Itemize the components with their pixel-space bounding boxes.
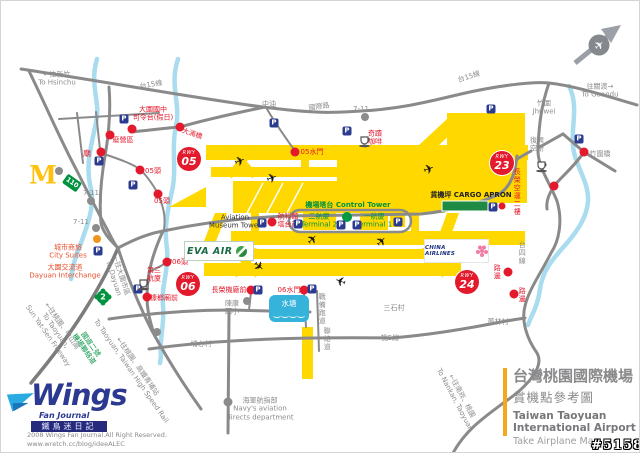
pond-label: 水塘 [269, 298, 309, 309]
dayuan-interchange-label: 大園交流道 Dayuan Interchange [29, 264, 100, 281]
danan-bridge-label: 大湳橋 [181, 127, 204, 141]
link-road-label: 聯絡道 [323, 327, 331, 351]
rwy05-head-2-dot [154, 190, 163, 199]
abandoned-camp-label: 廢營區 [113, 136, 134, 144]
parking-icon: P [489, 203, 498, 212]
parking-icon: P [129, 181, 138, 190]
route-tai15-ne-label: 台15線 [457, 69, 481, 84]
map-title-cn: 台灣桃園國際機場 [513, 368, 636, 385]
parking-icon: P [337, 221, 346, 230]
dayuan-junior-high-label: 大園國中 司令台(假日) [133, 106, 173, 123]
rwy06-head-dot [163, 258, 172, 267]
danan-bridge-dot [176, 123, 185, 132]
seven-eleven-sw-label: 7-11 [73, 218, 89, 226]
kanglang-temple-dot [143, 293, 152, 302]
airplane-icon: ✈ [304, 231, 322, 249]
cargo-apron-label: 貨機坪 CARGO APRON [430, 191, 511, 199]
eva-air-logo: EVA AIR [184, 241, 254, 261]
parking-icon: P [394, 218, 403, 227]
water-waves-icon [273, 311, 305, 320]
rwy05-sluice-dot [291, 148, 300, 157]
navy-dot [224, 398, 233, 407]
parking-icon: P [270, 119, 279, 128]
parking-icon: P [94, 247, 103, 256]
chenkang-elementary-label: 陳康 國小 [225, 300, 239, 317]
roadside-2-label: 路邊 [518, 287, 526, 303]
china-airlines-logo-text: CHINA AIRLINES [425, 245, 477, 257]
control-tower-label: 機場塔台 Control Tower [305, 201, 390, 209]
airplane-icon: ✈ [264, 170, 279, 188]
seven-eleven-west-label: 7-11 [83, 189, 99, 197]
parking-icon: P [120, 115, 129, 124]
rwy-06-badge: RWY06 [176, 272, 200, 296]
city-suites-dot [93, 235, 101, 243]
parking-icon: P [487, 105, 496, 114]
temple-label: 廟 [83, 149, 91, 159]
freeway2-name-label: 國道二號 機場聯絡道 [70, 328, 104, 366]
kanglang-temple-label: 槺榔廟前 [150, 294, 178, 302]
china-airlines-logo: CHINA AIRLINES [424, 239, 489, 263]
museum-tower-dot [268, 218, 277, 227]
title-accent-bar [503, 368, 507, 436]
catering-label: 復興 空廚 [530, 137, 544, 154]
route-110-shield: 110 [62, 174, 82, 193]
city-suites-label: 城市商旅 City Suites [49, 244, 86, 261]
map-title-en-2: International Airport [513, 422, 636, 434]
seven-eleven-north-dot [361, 113, 369, 121]
east-road-dot [550, 182, 559, 191]
abandoned-camp-dot [106, 131, 115, 140]
airport-spotting-map: ✈ ←往新竹 To Hsinchu台15線中油國際路7-11台15線竹圍 Jhu… [0, 0, 640, 453]
wings-logo-word: Wings [31, 378, 127, 412]
airplane-icon: ✈ [373, 233, 391, 251]
rwy05-head-1-label: 05頭 [145, 167, 161, 175]
map-subtitle-cn: 賞機點參考圖 [513, 387, 636, 406]
copyright-text: 2008 Wings Fan Journal.All Right Reserve… [27, 431, 167, 449]
to-nankan-label: ←往南崁、桃園 To Nankan, Taoyuan [434, 363, 482, 432]
roadside-2-dot [510, 290, 519, 299]
eva-hangar-label: 長榮機廠前 [212, 286, 247, 294]
aviation-museum-label: Aviation Museum Tower [209, 214, 261, 231]
zhuwei-bridge-dot [580, 148, 589, 157]
cargo-bar-dot [499, 203, 506, 210]
rwy-24-badge: RWY24 [455, 270, 479, 294]
seven-eleven-north-label: 7-11 [353, 105, 369, 113]
plum-blossom-icon [480, 249, 484, 253]
chenkang-dot [243, 297, 251, 305]
rwy05-head-1-dot [136, 166, 145, 175]
intl-road-label: 國際路 [308, 101, 330, 112]
parking-icon: P [254, 286, 263, 295]
route-tai15-nw-label: 台15線 [139, 79, 163, 91]
parking-icon: P [575, 135, 584, 144]
airplane-icon: ✈ [232, 153, 247, 171]
wings-logo-subtitle: Fan Journal [39, 411, 89, 420]
route-tai4-label: 台四線 [518, 241, 526, 265]
pond: 水塘 [269, 295, 309, 322]
parking-icon: P [258, 219, 267, 228]
freeway-2-shield: 2 [97, 291, 110, 304]
airplane-icon: ✈ [333, 271, 348, 289]
jhuwei-label: 竹圍 Jhuwei [533, 100, 556, 117]
route-tao5-label: 桃5線 [381, 334, 399, 342]
rwy-23-badge: RWY23 [490, 151, 514, 175]
rwy-05-badge: RWY05 [177, 147, 201, 171]
seven-eleven-west-dot [87, 197, 95, 205]
sanshi-village-label: 三石村 [384, 304, 405, 312]
seven-eleven-sw-dot [92, 224, 100, 232]
cpc-gas-label: 中油 [262, 100, 276, 108]
roadside-1-dot [504, 268, 513, 277]
watermark: #51589 [591, 438, 640, 453]
temple-dot [97, 148, 106, 157]
eva-cargo-2f-label: 長榮空運二樓 [513, 168, 521, 216]
puxin-village-label: 埔心村 [191, 340, 212, 348]
parking-icon: P [95, 157, 104, 166]
rwy05-sluice-label: 05水門 [301, 148, 324, 156]
dayuan-jh-dot [128, 125, 137, 134]
zhuwei-bridge-label: 竹圍橋 [590, 150, 611, 158]
eva-globe-icon [236, 246, 247, 257]
roadside-1-label: 路邊 [493, 264, 501, 280]
parking-icon: P [294, 220, 303, 229]
map-title-en-1: Taiwan Taoyuan [513, 410, 636, 422]
parking-icon: P [343, 127, 352, 136]
to-sun-yat-sen-freeway-label: ←往桃園、中山高 To Taoyuan, Sun Yat-Sen Freeway [24, 294, 86, 368]
reserve-runway-label: 戰備跑道 [318, 293, 326, 325]
parking-icon: P [353, 221, 362, 230]
eva-air-logo-text: EVA AIR [187, 246, 233, 257]
navy-aviation-label: 海軍航指部 Navy's aviation directs department [226, 396, 293, 421]
junction-dot [153, 328, 161, 336]
airplane-icon: ✈ [421, 161, 436, 179]
mcdonalds-icon: M [29, 163, 57, 188]
to-hsinchu-label: ←往新竹 To Hsinchu [38, 71, 76, 88]
to-guandu-label: 往關渡→ To Guandu [581, 83, 618, 100]
map-title-block: 台灣桃園國際機場 賞機點參考圖 Taiwan Taoyuan Internati… [503, 368, 636, 447]
terminal2-label: 二航廈 Terminal 2 [301, 213, 337, 230]
guolin-village-label: 菓林村 [488, 318, 509, 326]
rwy06-sluice-label: 06水門 [278, 286, 301, 294]
parking-icon: P [308, 285, 317, 294]
